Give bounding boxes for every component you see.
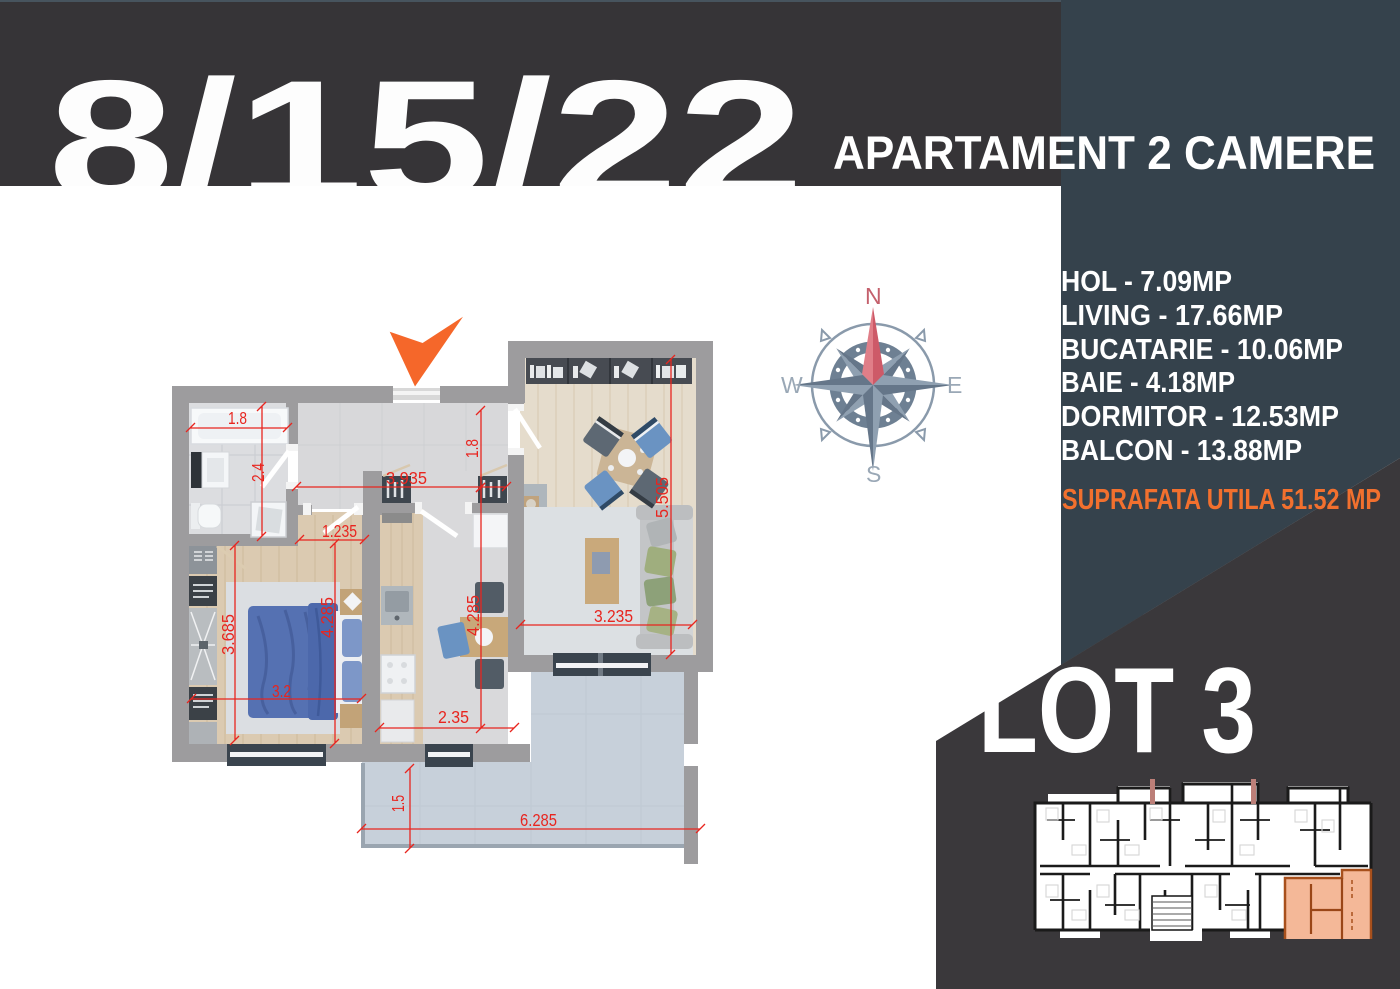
svg-text:1.5: 1.5 bbox=[388, 795, 408, 812]
svg-text:4.285: 4.285 bbox=[463, 595, 483, 636]
svg-text:HOL - 7.09MP: HOL - 7.09MP bbox=[1061, 266, 1232, 298]
svg-text:LOT 3: LOT 3 bbox=[978, 642, 1256, 778]
svg-text:3.935: 3.935 bbox=[386, 468, 427, 488]
svg-text:DORMITOR - 12.53MP: DORMITOR - 12.53MP bbox=[1061, 401, 1339, 433]
svg-text:3.235: 3.235 bbox=[594, 606, 633, 626]
svg-text:1.235: 1.235 bbox=[322, 521, 357, 541]
svg-text:W: W bbox=[781, 372, 803, 398]
svg-text:2.4: 2.4 bbox=[248, 463, 268, 482]
svg-text:2.35: 2.35 bbox=[438, 707, 469, 727]
svg-text:SUPRAFATA UTILA 51.52 MP: SUPRAFATA UTILA 51.52 MP bbox=[1062, 484, 1381, 516]
svg-text:5.505: 5.505 bbox=[652, 477, 672, 518]
svg-text:BALCON - 13.88MP: BALCON - 13.88MP bbox=[1061, 435, 1302, 467]
svg-text:1.8: 1.8 bbox=[228, 408, 247, 428]
svg-text:4.285: 4.285 bbox=[317, 597, 337, 638]
svg-text:3.2: 3.2 bbox=[272, 681, 291, 701]
svg-text:LIVING - 17.66MP: LIVING - 17.66MP bbox=[1061, 300, 1283, 332]
svg-text:1.8: 1.8 bbox=[462, 439, 482, 458]
svg-text:N: N bbox=[865, 283, 882, 309]
svg-text:BAIE - 4.18MP: BAIE - 4.18MP bbox=[1061, 367, 1235, 399]
svg-text:3.685: 3.685 bbox=[218, 614, 238, 655]
svg-text:6.285: 6.285 bbox=[520, 810, 557, 830]
svg-text:E: E bbox=[947, 372, 962, 398]
svg-text:APARTAMENT 2 CAMERE: APARTAMENT 2 CAMERE bbox=[833, 126, 1375, 179]
svg-text:BUCATARIE - 10.06MP: BUCATARIE - 10.06MP bbox=[1061, 334, 1343, 366]
svg-text:S: S bbox=[866, 461, 881, 487]
